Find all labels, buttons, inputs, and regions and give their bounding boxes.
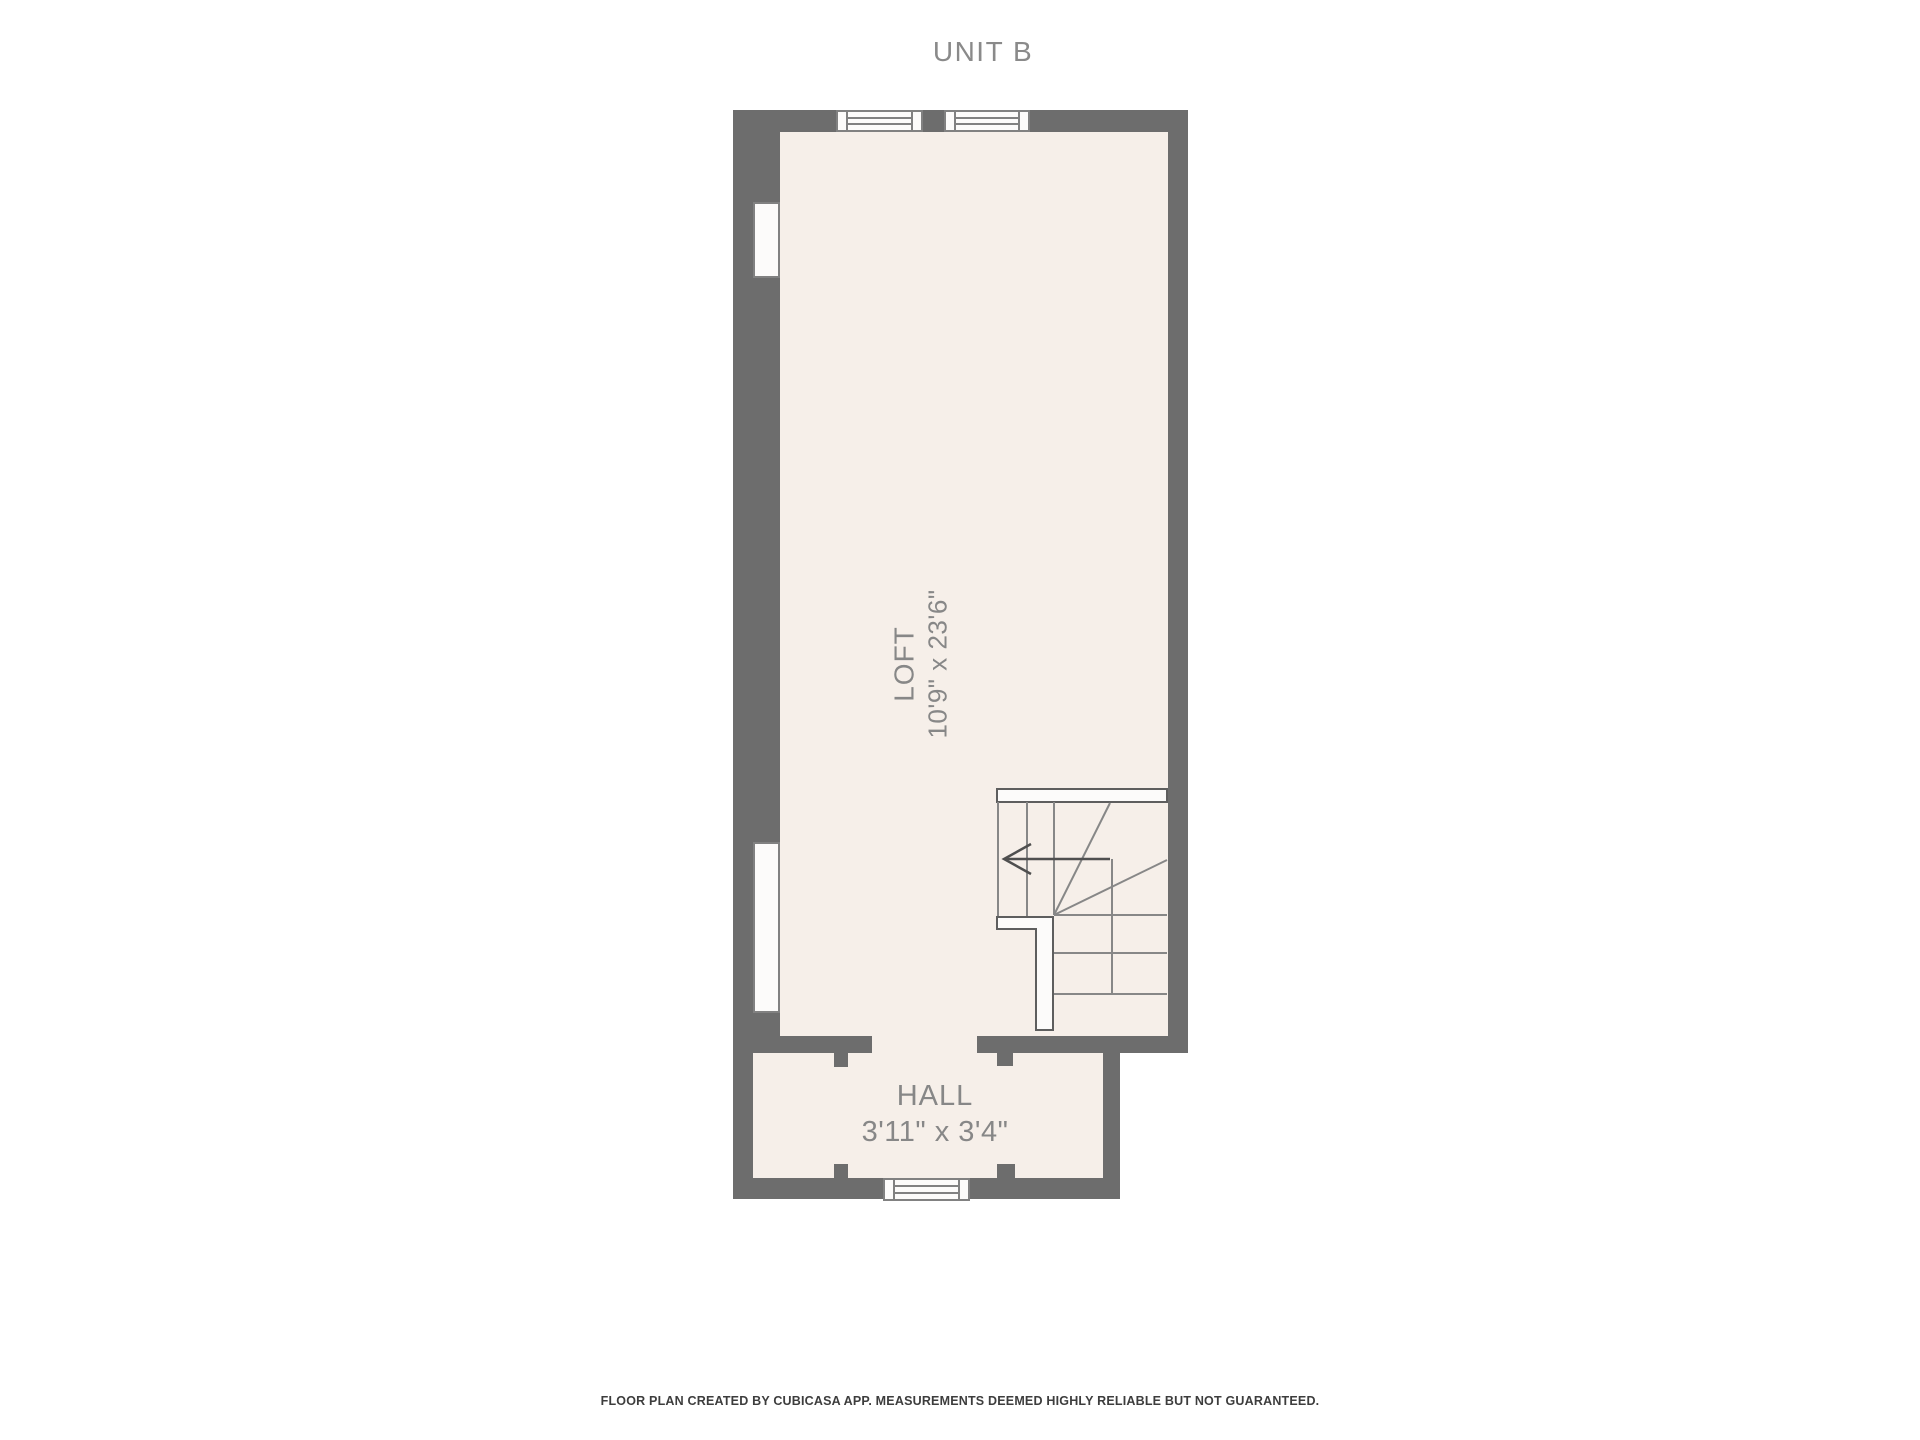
jamb-stub — [834, 1164, 848, 1178]
window-panes — [894, 1185, 959, 1193]
window-panes — [955, 117, 1019, 125]
unit-title: UNIT B — [933, 36, 1033, 68]
jamb-stub — [834, 1053, 848, 1067]
room-dimensions: 10'9" x 23'6" — [921, 589, 954, 738]
jamb-stub — [997, 1164, 1015, 1178]
jamb-stub — [997, 1053, 1013, 1066]
window-icon — [836, 110, 923, 132]
wall-loft-bottom-left — [733, 1036, 872, 1053]
hall-room-label: HALL 3'11" x 3'4" — [862, 1078, 1009, 1151]
doorway-floor — [872, 1036, 977, 1053]
window-panes — [847, 117, 912, 125]
entry-window-icon — [883, 1178, 970, 1201]
wall-right — [1168, 110, 1188, 1053]
room-name: HALL — [862, 1078, 1009, 1114]
disclaimer-text: FLOOR PLAN CREATED BY CUBICASA APP. MEAS… — [0, 1394, 1920, 1408]
floor-plan-page: UNIT B — [0, 0, 1920, 1440]
room-name: LOFT — [886, 589, 921, 738]
window-icon — [753, 842, 780, 1013]
window-icon — [753, 202, 780, 278]
window-icon — [944, 110, 1030, 132]
loft-floor — [780, 132, 1168, 1036]
loft-room-label: LOFT 10'9" x 23'6" — [886, 589, 954, 738]
room-dimensions: 3'11" x 3'4" — [862, 1114, 1009, 1150]
wall-loft-bottom-right — [977, 1036, 1188, 1053]
